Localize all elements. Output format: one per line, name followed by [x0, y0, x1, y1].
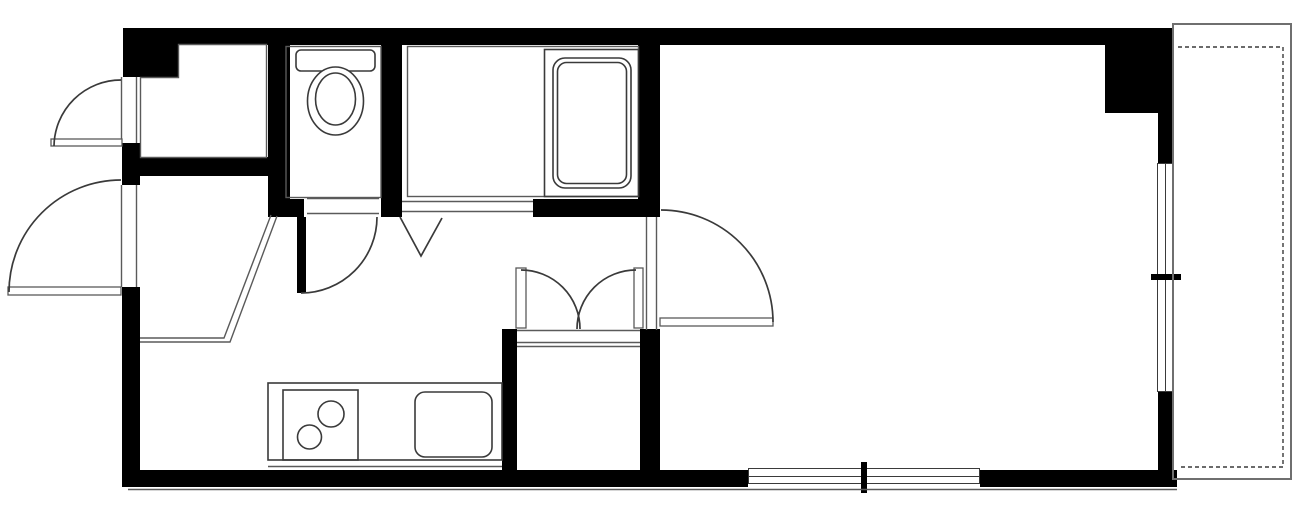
bath-door-threshold: [402, 202, 533, 212]
closet-door-arc-right: [577, 270, 636, 329]
closet-shelf-line: [517, 343, 640, 347]
mainroom-doorway-frame: [647, 217, 657, 330]
entry-lower-door-arc: [9, 180, 121, 292]
mainroom-door-arc: [661, 210, 773, 322]
plan-linework: [0, 0, 1300, 514]
entry-upper-door-frame: [122, 77, 137, 143]
bathtub-outer: [553, 58, 631, 188]
entrance-step-edge-inner: [140, 216, 277, 342]
floor-plan: [0, 0, 1300, 514]
closet-door-arc-left: [521, 270, 580, 329]
bath-folding-door: [400, 217, 442, 256]
toilet-door-threshold: [307, 199, 379, 214]
entry-lower-door-leaf: [8, 287, 121, 295]
closet-door-leaf-left: [516, 268, 526, 328]
entry-closet-outline: [141, 45, 267, 158]
bathtub-inner: [558, 63, 627, 184]
closet-door-leaf-right: [634, 268, 643, 328]
balcony-outline: [1173, 24, 1291, 479]
toilet-door-arc: [301, 217, 377, 293]
mainroom-door-leaf: [660, 318, 773, 326]
bathroom-outline: [408, 47, 639, 197]
balcony-dashed-line: [1178, 47, 1283, 467]
entrance-step-edge-outer: [140, 215, 271, 338]
entry-lower-door-frame: [122, 185, 137, 287]
kitchen-counter: [268, 383, 502, 460]
entry-upper-door-arc: [54, 80, 121, 146]
bathtub-surround: [545, 50, 639, 197]
entry-upper-door-leaf: [51, 139, 122, 146]
